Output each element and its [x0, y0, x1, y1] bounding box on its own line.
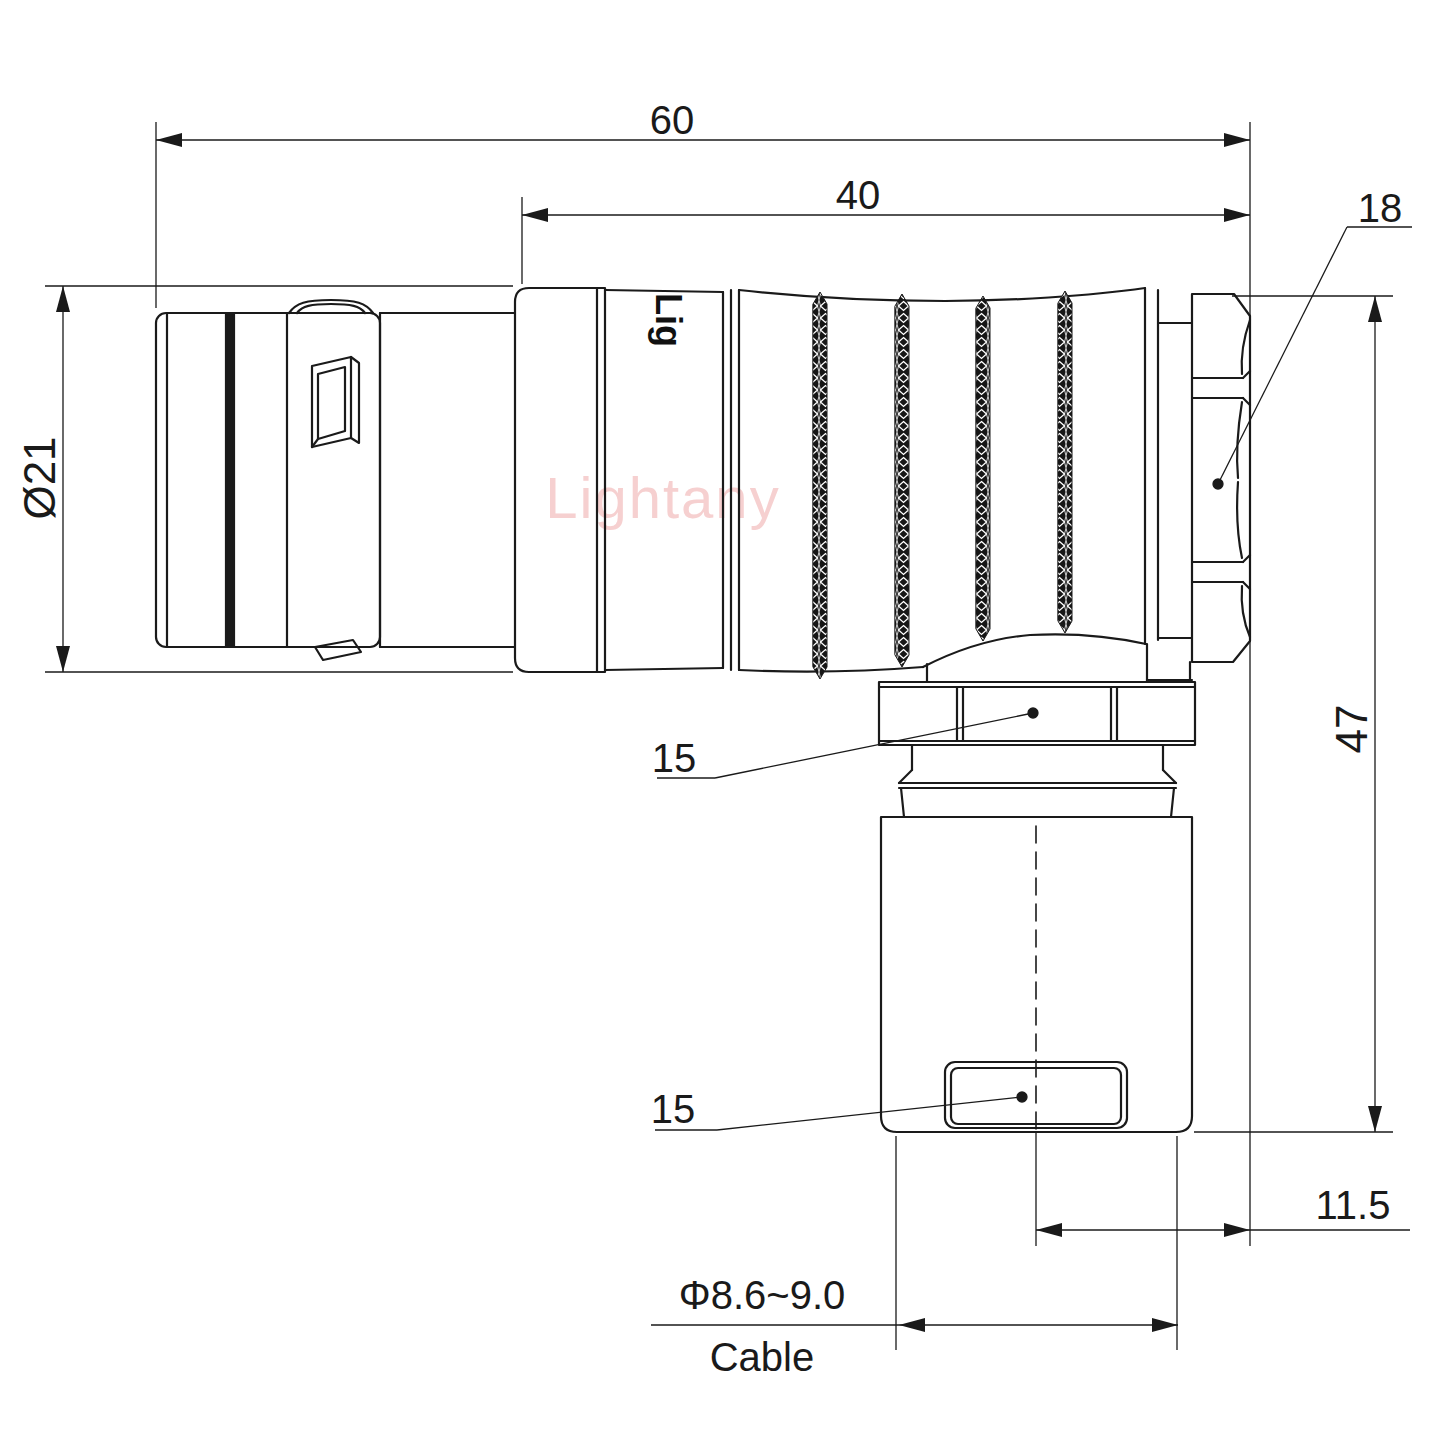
connector-drawing: Lightany: [0, 0, 1440, 1440]
knurl-strips: [813, 291, 1072, 679]
dim-18-text: 18: [1358, 186, 1403, 230]
leader-15-coupling: [657, 708, 1038, 778]
dim-cable-diameter-text: Φ8.6~9.0: [679, 1273, 845, 1317]
dim-21-text: Ø21: [15, 436, 64, 519]
collar-flare: [899, 745, 1176, 817]
front-barrel: [156, 300, 515, 660]
elbow-curve: [923, 634, 1146, 667]
elbow-tube: [927, 664, 1147, 682]
dim-15-clamp-text: 15: [651, 1087, 696, 1131]
latch-window: [312, 357, 359, 447]
cable-label-text: Cable: [710, 1335, 815, 1379]
dim-60-text: 60: [650, 98, 695, 142]
knurled-grip: [739, 288, 1158, 672]
dim-40-text: 40: [836, 173, 881, 217]
dimension-lines: [45, 122, 1412, 1350]
watermark-text: Lightany: [545, 465, 780, 530]
technical-drawing-page: Lightany: [0, 0, 1440, 1440]
seal-band: [226, 313, 234, 647]
dim-15-coupling-text: 15: [652, 736, 697, 780]
dim-11-5-text: 11.5: [1316, 1183, 1391, 1227]
dim-47-text: 47: [1327, 705, 1376, 754]
latch-spring-top: [289, 300, 373, 313]
body-print-text: Lig: [648, 293, 689, 347]
spacer-ring: [1147, 323, 1192, 681]
latch-tab-bottom: [315, 640, 361, 660]
connector-body: [156, 288, 1250, 1132]
